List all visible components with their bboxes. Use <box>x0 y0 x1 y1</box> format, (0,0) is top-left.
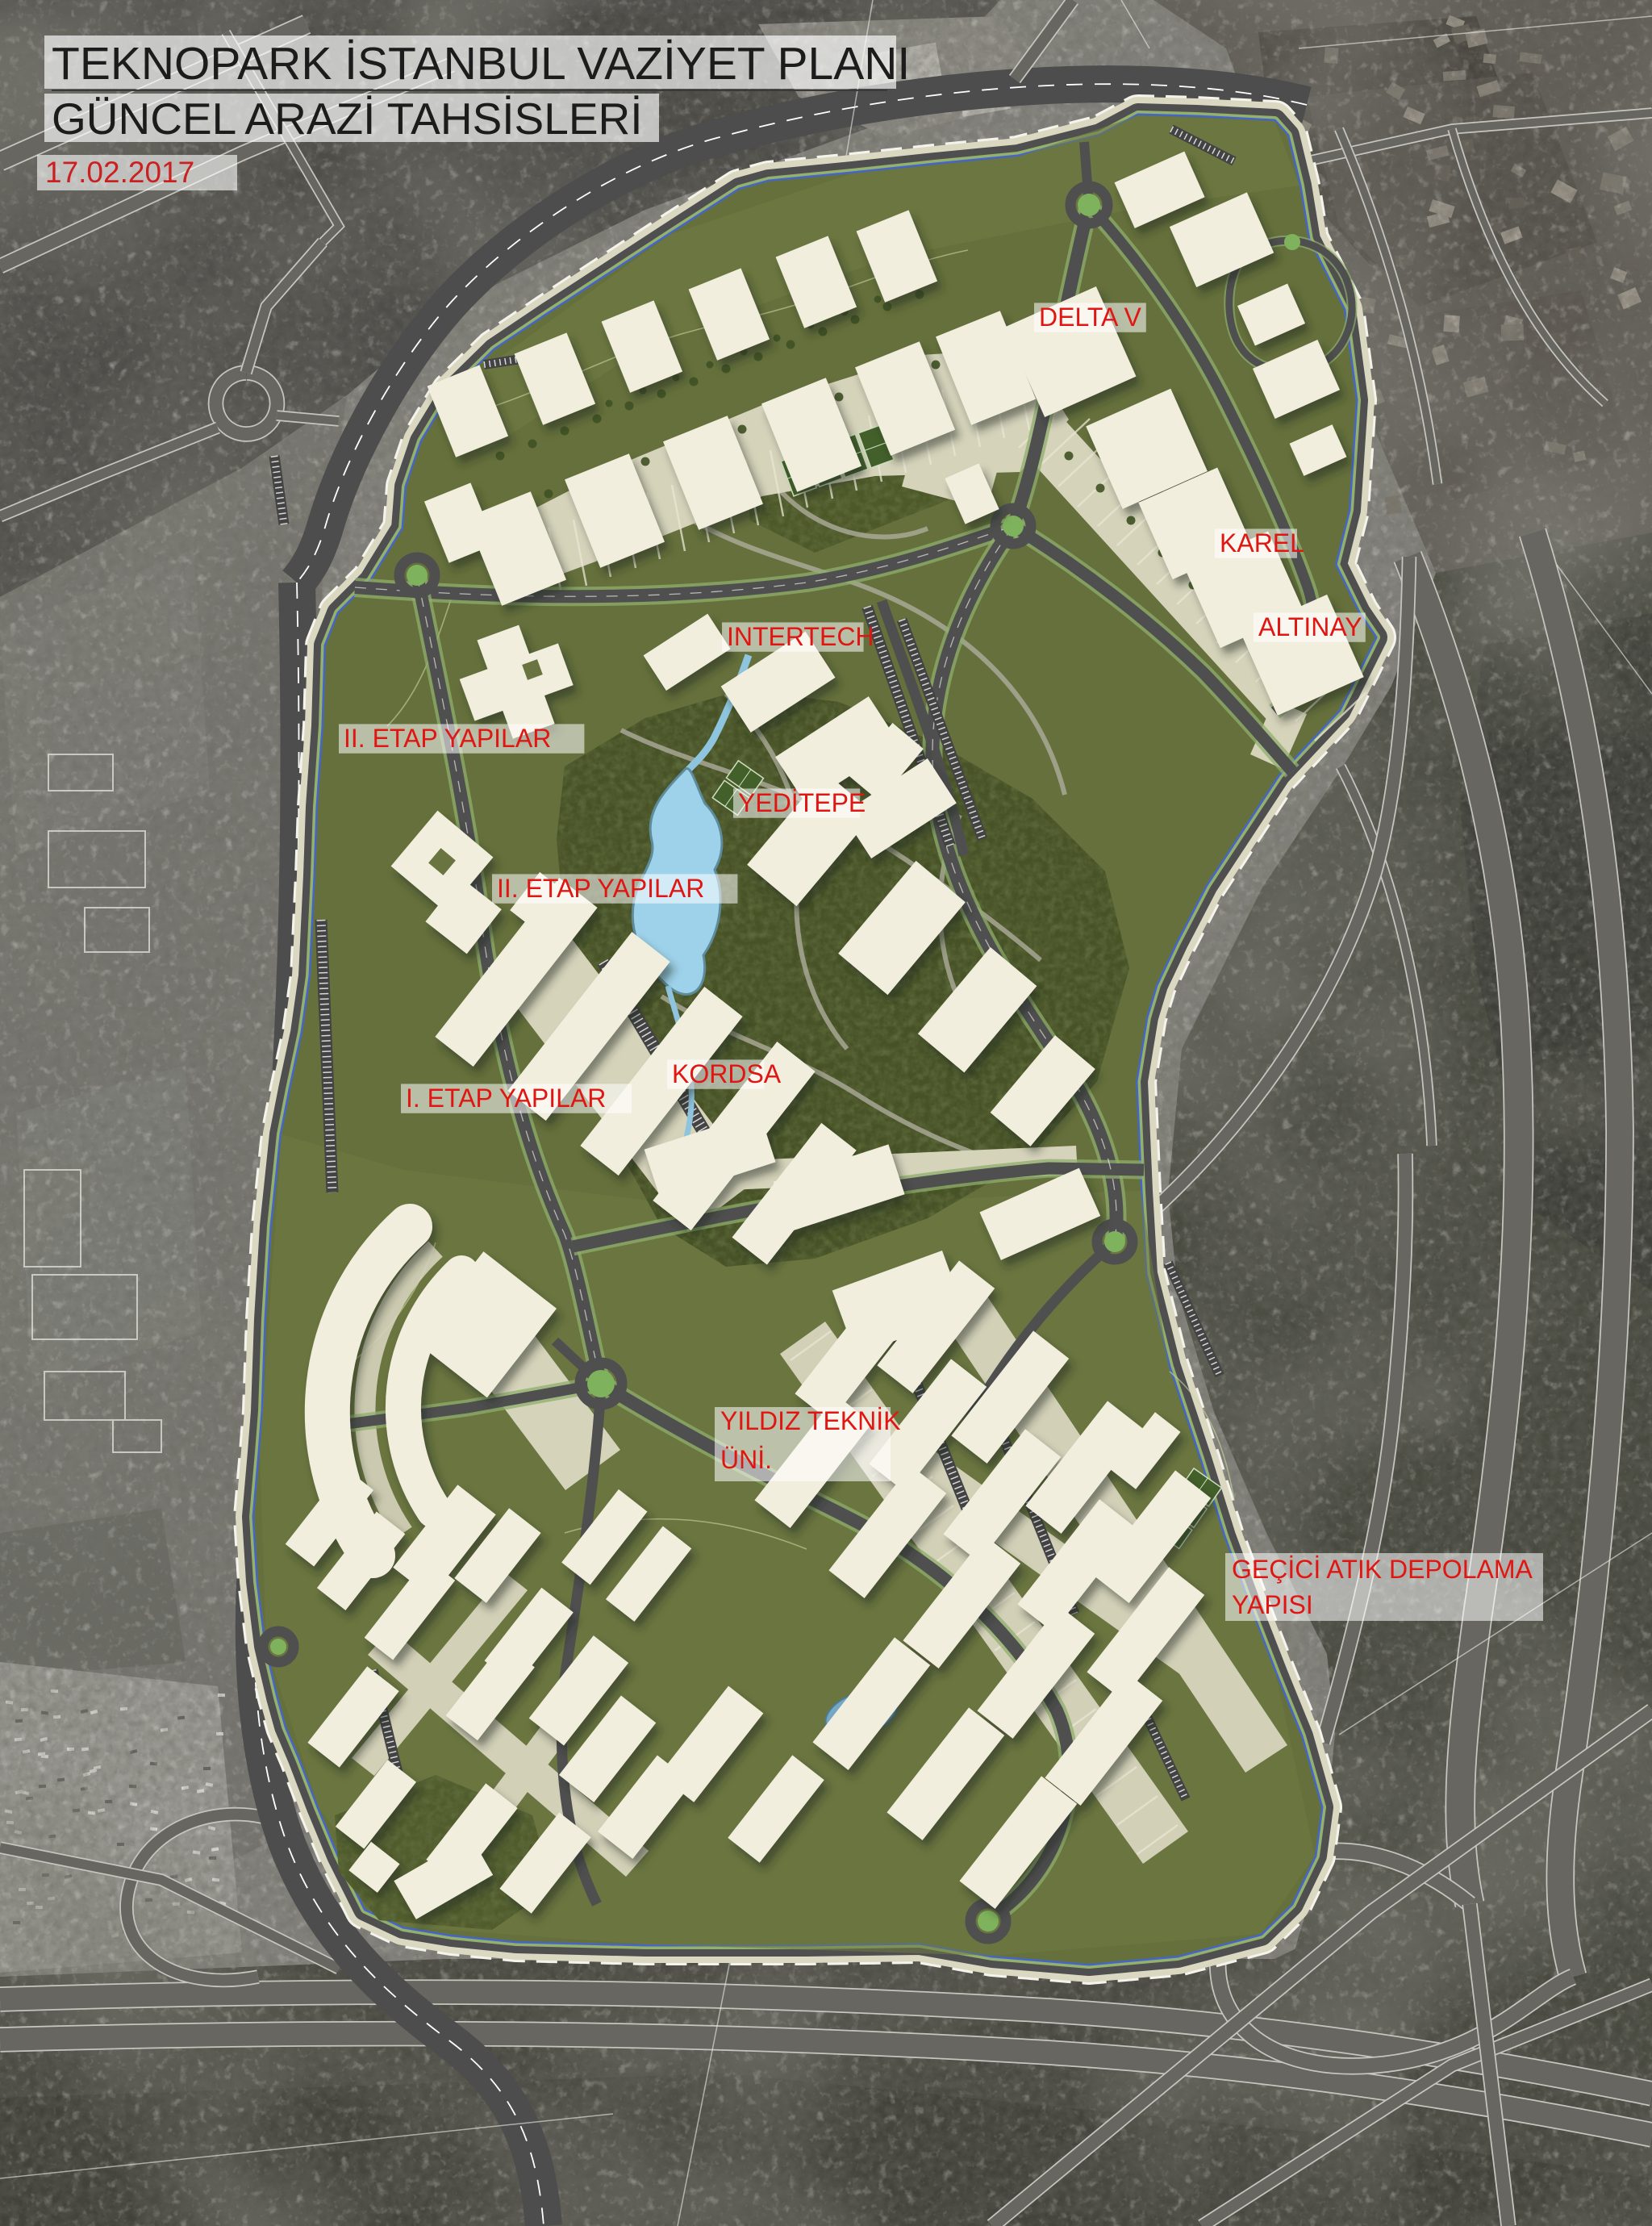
svg-text:DELTA V: DELTA V <box>1039 303 1142 332</box>
svg-text:TEKNOPARK İSTANBUL VAZİYET PLA: TEKNOPARK İSTANBUL VAZİYET PLANI <box>52 38 910 90</box>
svg-text:GEÇİCİ ATIK DEPOLAMA: GEÇİCİ ATIK DEPOLAMA <box>1232 1555 1533 1584</box>
svg-text:II. ETAP YAPILAR: II. ETAP YAPILAR <box>497 874 704 903</box>
svg-text:I. ETAP YAPILAR: I. ETAP YAPILAR <box>406 1084 606 1113</box>
svg-text:17.02.2017: 17.02.2017 <box>45 156 194 189</box>
svg-text:ALTINAY: ALTINAY <box>1258 612 1362 641</box>
svg-text:KAREL: KAREL <box>1220 528 1304 558</box>
svg-text:GÜNCEL ARAZİ TAHSİSLERİ: GÜNCEL ARAZİ TAHSİSLERİ <box>52 94 643 144</box>
svg-text:YEDİTEPE: YEDİTEPE <box>738 788 866 817</box>
svg-text:ÜNİ.: ÜNİ. <box>720 1445 772 1474</box>
svg-text:YILDIZ TEKNİK: YILDIZ TEKNİK <box>720 1406 900 1435</box>
svg-text:KORDSA: KORDSA <box>672 1059 782 1088</box>
svg-text:INTERTECH: INTERTECH <box>727 622 874 651</box>
svg-text:YAPISI: YAPISI <box>1232 1590 1313 1619</box>
svg-text:II. ETAP YAPILAR: II. ETAP YAPILAR <box>344 724 551 753</box>
